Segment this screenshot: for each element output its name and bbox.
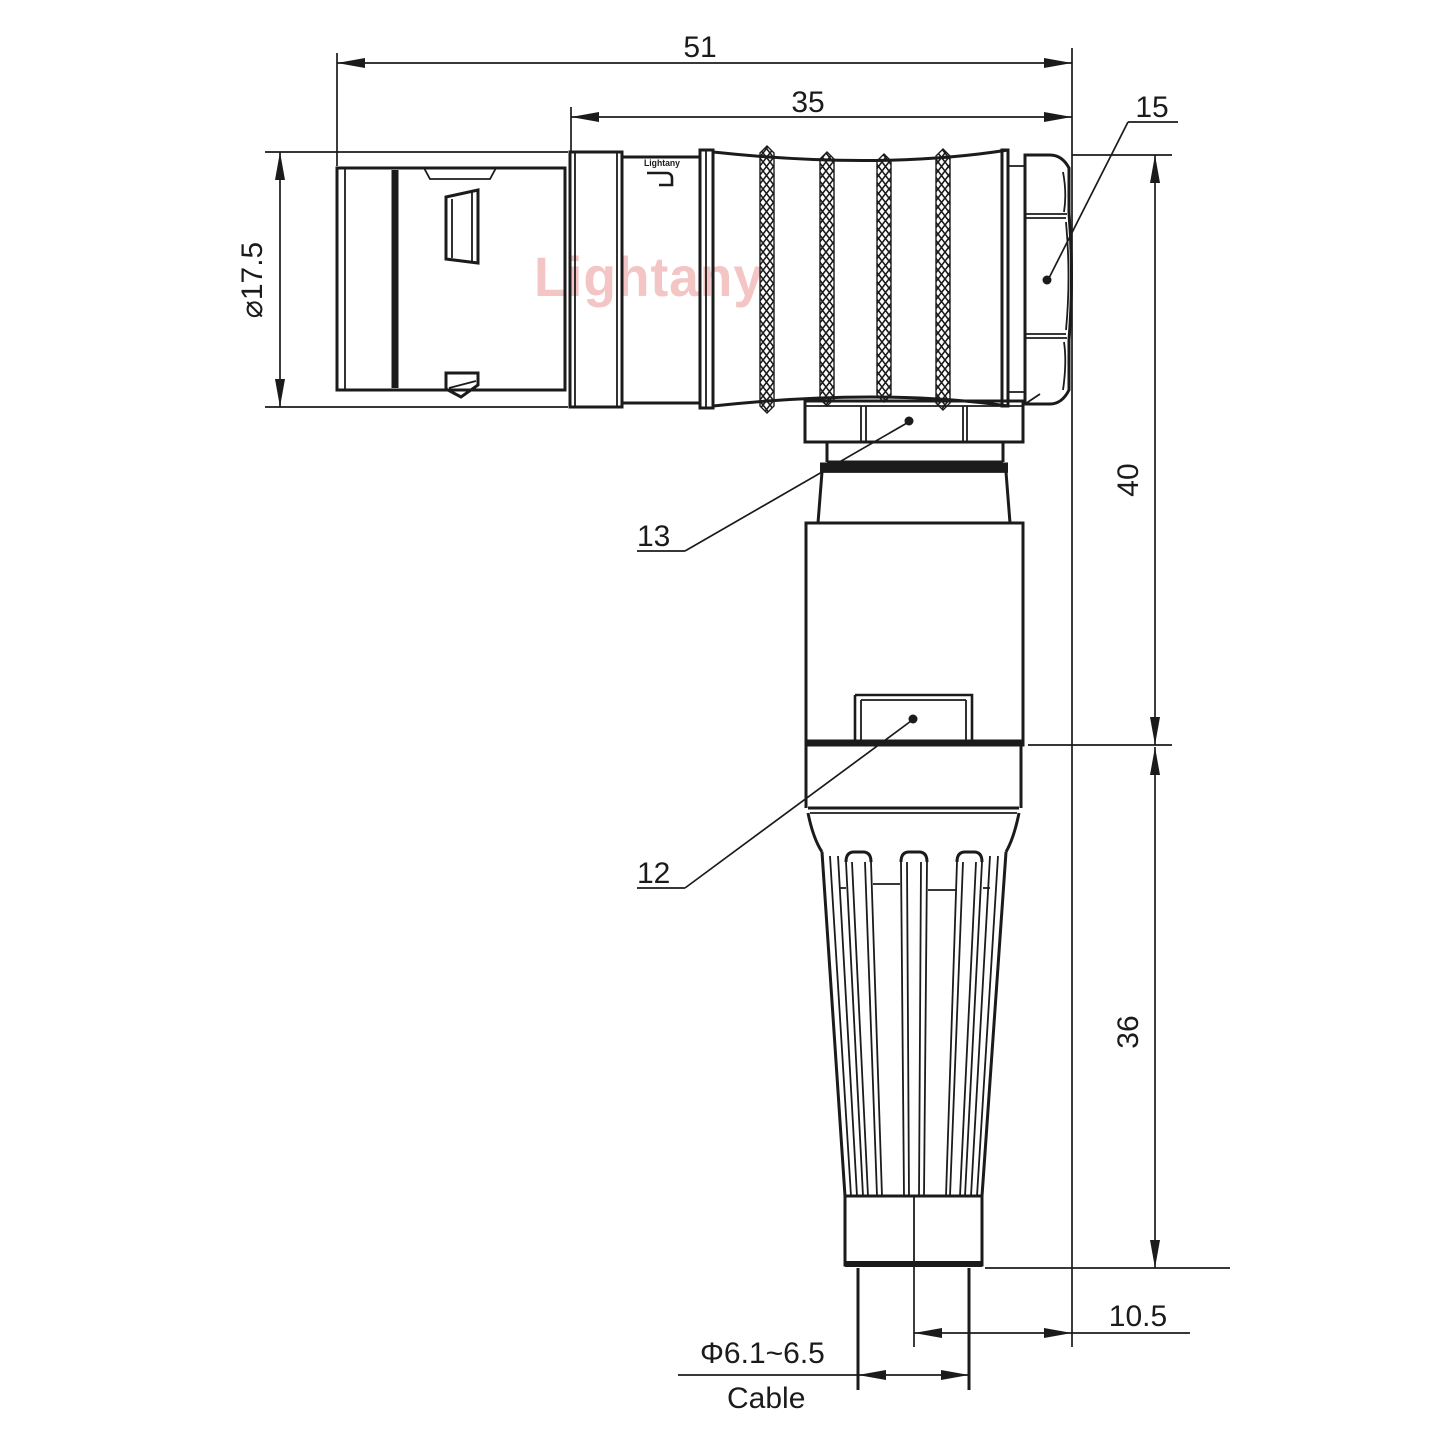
dimension-front-diameter: ⌀17.5 — [236, 152, 568, 407]
dimension-height-to-axis: 40 — [1028, 155, 1172, 745]
hex-backnut — [1008, 155, 1072, 404]
connector-plug-barrel — [337, 168, 565, 397]
dim-axis-offset-text: 10.5 — [1109, 1300, 1167, 1333]
dim-grip-length-text: 35 — [791, 86, 824, 119]
cable-bushing — [845, 1196, 982, 1265]
dimension-grip-length: 35 — [571, 86, 1072, 151]
dim-height-to-axis-text: 40 — [1112, 463, 1145, 496]
cable-label-text: Cable — [727, 1382, 805, 1415]
brand-engraving: Lightany — [644, 158, 681, 185]
knurl-band — [877, 154, 891, 402]
drawing-canvas: Lightany Lightany — [0, 0, 1440, 1440]
leader-backnut: 15 — [1043, 91, 1179, 285]
dim-cable-diameter-text: Φ6.1~6.5 — [700, 1337, 825, 1370]
knurl-band — [820, 152, 834, 406]
part-label-backnut: 15 — [1135, 91, 1168, 124]
dim-relief-height-text: 36 — [1112, 1015, 1145, 1048]
technical-drawing: Lightany Lightany — [0, 0, 1440, 1440]
dimension-cable-diameter: Φ6.1~6.5 Cable — [678, 1337, 970, 1415]
brand-engraving-text: Lightany — [644, 158, 681, 169]
dim-overall-length-text: 51 — [683, 31, 716, 64]
keying-slot — [446, 190, 478, 263]
dimension-axis-offset: 10.5 — [914, 1267, 1190, 1347]
dimension-relief-height: 36 — [985, 747, 1230, 1268]
leader-coupling-ring: 13 — [637, 417, 914, 554]
part-label-coupling-ring: 13 — [637, 520, 670, 553]
dim-front-diameter-text: ⌀17.5 — [236, 242, 269, 318]
knurl-band — [760, 146, 774, 413]
knurl-band — [936, 149, 950, 410]
strain-relief — [806, 746, 1021, 1196]
part-label-housing: 12 — [637, 857, 670, 890]
housing-body — [806, 523, 1023, 745]
